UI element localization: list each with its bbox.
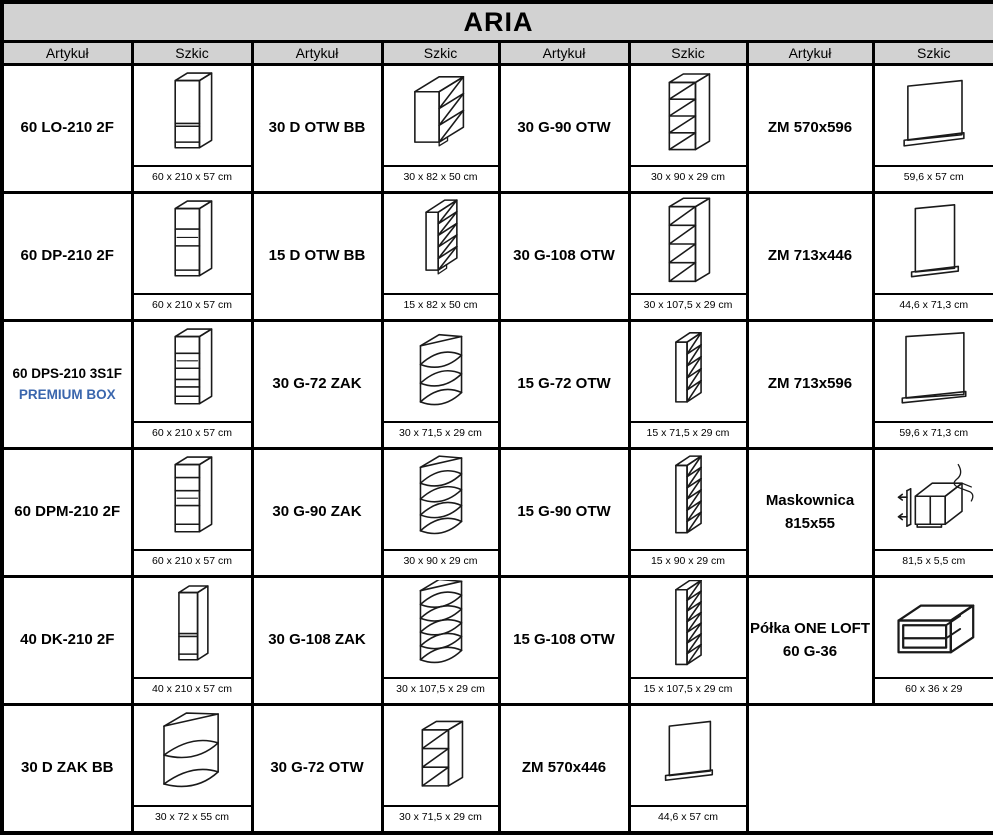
sketch-wrap: 40 x 210 x 57 cm [134, 578, 251, 700]
article-name: Półka ONE LOFT [749, 618, 872, 641]
article-cell: 15 D OTW BB [252, 193, 382, 321]
article-name: 60 LO-210 2F [4, 117, 131, 140]
tall-cabinet-2f-icon [134, 66, 251, 165]
catalog-title: ARIA [2, 2, 993, 42]
base-open-shelf-icon [384, 66, 498, 165]
sketch-wrap: 59,6 x 57 cm [875, 66, 993, 188]
sketch-wrap: 44,6 x 71,3 cm [875, 194, 993, 316]
catalog-row-5: 30 D ZAK BB30 x 72 x 55 cm30 G-72 OTW30 … [2, 705, 993, 833]
article-name: ZM 713x596 [749, 373, 872, 396]
narrow-wall-open-6-sketch-drawing [632, 452, 744, 548]
tall-cabinet-niche-2-icon [134, 450, 251, 549]
article-cell: ZM 713x596 [747, 321, 873, 449]
article-cell: 30 G-72 OTW [252, 705, 382, 833]
article-name: 30 G-72 ZAK [254, 373, 381, 396]
article-cell: Maskownica815x55 [747, 449, 873, 577]
sketch-cell: 30 x 71,5 x 29 cm [382, 705, 499, 833]
sketch-cell: 30 x 107,5 x 29 cm [382, 577, 499, 705]
catalog-table: ARIA ArtykułSzkicArtykułSzkicArtykułSzki… [0, 0, 993, 835]
sketch-cell: 15 x 82 x 50 cm [382, 193, 499, 321]
empty-cell [747, 705, 993, 833]
tall-cabinet-2f-narrow-icon [134, 578, 251, 677]
dimensions-label: 15 x 90 x 29 cm [631, 549, 746, 572]
article-subtitle: 60 G-36 [749, 641, 872, 664]
catalog-row-2: 60 DPS-210 3S1FPREMIUM BOX60 x 210 x 57 … [2, 321, 993, 449]
dimensions-label: 30 x 71,5 x 29 cm [384, 421, 498, 444]
article-cell: 30 G-90 ZAK [252, 449, 382, 577]
column-header-szkic-0: Szkic [132, 42, 252, 65]
open-shelf-box-icon [875, 578, 993, 677]
sketch-cell: 60 x 210 x 57 cm [132, 193, 252, 321]
sketch-wrap: 60 x 210 x 57 cm [134, 450, 251, 572]
base-open-shelf-sketch-drawing [385, 68, 497, 164]
article-name: 30 G-108 OTW [501, 245, 628, 268]
dimensions-label: 60 x 210 x 57 cm [134, 165, 251, 188]
panel-rail-icon [631, 706, 746, 805]
panel-icon [875, 66, 993, 165]
dimensions-label: 60 x 210 x 57 cm [134, 421, 251, 444]
sketch-wrap: 30 x 72 x 55 cm [134, 706, 251, 828]
article-name: 40 DK-210 2F [4, 629, 131, 652]
sketch-cell: 44,6 x 57 cm [629, 705, 747, 833]
sketch-cell: 60 x 36 x 29 [873, 577, 993, 705]
article-cell: 15 G-90 OTW [499, 449, 629, 577]
dimensions-label: 81,5 x 5,5 cm [875, 549, 993, 572]
sketch-wrap: 30 x 71,5 x 29 cm [384, 322, 498, 444]
dimensions-label: 44,6 x 71,3 cm [875, 293, 993, 316]
article-subtitle-accent: PREMIUM BOX [4, 385, 131, 405]
article-cell: 60 LO-210 2F [2, 65, 132, 193]
sketch-cell: 60 x 210 x 57 cm [132, 449, 252, 577]
dimensions-label: 59,6 x 57 cm [875, 165, 993, 188]
sketch-cell: 15 x 107,5 x 29 cm [629, 577, 747, 705]
catalog-row-0: 60 LO-210 2F60 x 210 x 57 cm30 D OTW BB3… [2, 65, 993, 193]
sketch-cell: 44,6 x 71,3 cm [873, 193, 993, 321]
panel-wide-sketch-drawing [878, 324, 990, 420]
narrow-wall-open-7-sketch-drawing [632, 580, 744, 676]
article-cell: 30 D OTW BB [252, 65, 382, 193]
sketch-wrap: 30 x 82 x 50 cm [384, 66, 498, 188]
article-name: Maskownica [749, 490, 872, 513]
dimensions-label: 60 x 36 x 29 [875, 677, 993, 700]
narrow-wall-open-6-icon [631, 450, 746, 549]
article-cell: ZM 570x446 [499, 705, 629, 833]
article-cell: ZM 570x596 [747, 65, 873, 193]
sketch-wrap: 60 x 210 x 57 cm [134, 194, 251, 316]
dimensions-label: 30 x 107,5 x 29 cm [631, 293, 746, 316]
article-name: 30 D OTW BB [254, 117, 381, 140]
open-shelf-box-sketch-drawing [878, 580, 990, 676]
sketch-wrap: 30 x 107,5 x 29 cm [384, 578, 498, 700]
dimensions-label: 30 x 107,5 x 29 cm [384, 677, 498, 700]
sketch-cell: 30 x 82 x 50 cm [382, 65, 499, 193]
sketch-wrap: 44,6 x 57 cm [631, 706, 746, 828]
sketch-wrap: 60 x 210 x 57 cm [134, 322, 251, 444]
panel-wide-icon [875, 322, 993, 421]
sketch-cell: 15 x 90 x 29 cm [629, 449, 747, 577]
column-header-artykul-2: Artykuł [499, 42, 629, 65]
dimensions-label: 59,6 x 71,3 cm [875, 421, 993, 444]
corner-shelf-3-sketch-drawing [385, 324, 497, 420]
article-name: ZM 570x446 [501, 757, 628, 780]
dimensions-label: 30 x 82 x 50 cm [384, 165, 498, 188]
article-cell: 30 G-108 OTW [499, 193, 629, 321]
sketch-cell: 30 x 72 x 55 cm [132, 705, 252, 833]
article-cell: 15 G-72 OTW [499, 321, 629, 449]
tall-cabinet-2f-sketch-drawing [136, 68, 248, 164]
article-cell: 60 DPS-210 3S1FPREMIUM BOX [2, 321, 132, 449]
dimensions-label: 15 x 71,5 x 29 cm [631, 421, 746, 444]
wall-open-3-icon [384, 706, 498, 805]
dimensions-label: 15 x 82 x 50 cm [384, 293, 498, 316]
dimensions-label: 60 x 210 x 57 cm [134, 549, 251, 572]
column-header-szkic-2: Szkic [629, 42, 747, 65]
article-cell: 30 G-90 OTW [499, 65, 629, 193]
article-name: 30 G-90 OTW [501, 117, 628, 140]
catalog-row-3: 60 DPM-210 2F60 x 210 x 57 cm30 G-90 ZAK… [2, 449, 993, 577]
column-header-artykul-0: Artykuł [2, 42, 132, 65]
column-header-row: ArtykułSzkicArtykułSzkicArtykułSzkicArty… [2, 42, 993, 65]
tall-cabinet-niche-sketch-drawing [136, 196, 248, 292]
article-name: ZM 570x596 [749, 117, 872, 140]
article-name: 60 DP-210 2F [4, 245, 131, 268]
corner-base-open-sketch-drawing [136, 708, 248, 804]
dimensions-label: 44,6 x 57 cm [631, 805, 746, 828]
article-name: 15 G-108 OTW [501, 629, 628, 652]
masking-strip-cabinet-sketch-drawing [878, 452, 990, 548]
sketch-cell: 15 x 71,5 x 29 cm [629, 321, 747, 449]
sketch-cell: 81,5 x 5,5 cm [873, 449, 993, 577]
tall-cabinet-niche-2-sketch-drawing [136, 452, 248, 548]
article-cell: 30 G-72 ZAK [252, 321, 382, 449]
sketch-wrap: 59,6 x 71,3 cm [875, 322, 993, 444]
tall-cabinet-2f-narrow-sketch-drawing [136, 580, 248, 676]
dimensions-label: 30 x 90 x 29 cm [631, 165, 746, 188]
corner-shelf-5-sketch-drawing [385, 580, 497, 676]
dimensions-label: 60 x 210 x 57 cm [134, 293, 251, 316]
dimensions-label: 30 x 90 x 29 cm [384, 549, 498, 572]
article-cell: 30 D ZAK BB [2, 705, 132, 833]
corner-shelf-5-icon [384, 578, 498, 677]
sketch-wrap: 15 x 82 x 50 cm [384, 194, 498, 316]
column-header-szkic-3: Szkic [873, 42, 993, 65]
article-subtitle: 815x55 [749, 513, 872, 536]
sketch-cell: 59,6 x 71,3 cm [873, 321, 993, 449]
narrow-wall-open-7-icon [631, 578, 746, 677]
catalog-row-4: 40 DK-210 2F40 x 210 x 57 cm30 G-108 ZAK… [2, 577, 993, 705]
article-name: 15 G-72 OTW [501, 373, 628, 396]
article-cell: ZM 713x446 [747, 193, 873, 321]
sketch-cell: 30 x 107,5 x 29 cm [629, 193, 747, 321]
wall-open-4-tall-sketch-drawing [632, 196, 744, 292]
column-header-artykul-1: Artykuł [252, 42, 382, 65]
sketch-wrap: 30 x 107,5 x 29 cm [631, 194, 746, 316]
article-name: 60 DPM-210 2F [4, 501, 131, 524]
article-cell: 60 DPM-210 2F [2, 449, 132, 577]
sketch-cell: 30 x 90 x 29 cm [629, 65, 747, 193]
sketch-cell: 60 x 210 x 57 cm [132, 65, 252, 193]
sketch-wrap: 60 x 210 x 57 cm [134, 66, 251, 188]
sketch-cell: 30 x 90 x 29 cm [382, 449, 499, 577]
sketch-cell: 40 x 210 x 57 cm [132, 577, 252, 705]
panel-rail-sketch-drawing [632, 708, 744, 804]
corner-shelf-4-icon [384, 450, 498, 549]
article-cell: 30 G-108 ZAK [252, 577, 382, 705]
sketch-cell: 60 x 210 x 57 cm [132, 321, 252, 449]
sketch-cell: 30 x 71,5 x 29 cm [382, 321, 499, 449]
article-name: 30 G-108 ZAK [254, 629, 381, 652]
dimensions-label: 30 x 71,5 x 29 cm [384, 805, 498, 828]
panel-tall-icon [875, 194, 993, 293]
dimensions-label: 30 x 72 x 55 cm [134, 805, 251, 828]
tall-cabinet-drawers-icon [134, 322, 251, 421]
article-name: 30 D ZAK BB [4, 757, 131, 780]
article-name: 60 DPS-210 3S1F [4, 364, 131, 384]
sketch-wrap: 15 x 71,5 x 29 cm [631, 322, 746, 444]
sketch-wrap: 30 x 71,5 x 29 cm [384, 706, 498, 828]
corner-shelf-3-icon [384, 322, 498, 421]
tall-cabinet-drawers-sketch-drawing [136, 324, 248, 420]
wall-open-4-sketch-drawing [632, 68, 744, 164]
article-cell: 40 DK-210 2F [2, 577, 132, 705]
column-header-szkic-1: Szkic [382, 42, 499, 65]
article-cell: 15 G-108 OTW [499, 577, 629, 705]
sketch-wrap: 60 x 36 x 29 [875, 578, 993, 700]
title-row: ARIA [2, 2, 993, 42]
tall-cabinet-niche-icon [134, 194, 251, 293]
sketch-wrap: 30 x 90 x 29 cm [384, 450, 498, 572]
dimensions-label: 40 x 210 x 57 cm [134, 677, 251, 700]
corner-shelf-4-sketch-drawing [385, 452, 497, 548]
article-name: ZM 713x446 [749, 245, 872, 268]
article-cell: 60 DP-210 2F [2, 193, 132, 321]
narrow-base-open-icon [384, 194, 498, 293]
sketch-wrap: 30 x 90 x 29 cm [631, 66, 746, 188]
wall-open-4-icon [631, 66, 746, 165]
sketch-wrap: 15 x 90 x 29 cm [631, 450, 746, 572]
sketch-wrap: 15 x 107,5 x 29 cm [631, 578, 746, 700]
article-name: 30 G-90 ZAK [254, 501, 381, 524]
masking-strip-cabinet-icon [875, 450, 993, 549]
narrow-base-open-sketch-drawing [385, 196, 497, 292]
wall-open-4-tall-icon [631, 194, 746, 293]
narrow-wall-open-5-sketch-drawing [632, 324, 744, 420]
column-header-artykul-3: Artykuł [747, 42, 873, 65]
sketch-wrap: 81,5 x 5,5 cm [875, 450, 993, 572]
wall-open-3-sketch-drawing [385, 708, 497, 804]
article-name: 15 D OTW BB [254, 245, 381, 268]
panel-sketch-drawing [878, 68, 990, 164]
article-name: 30 G-72 OTW [254, 757, 381, 780]
dimensions-label: 15 x 107,5 x 29 cm [631, 677, 746, 700]
article-cell: Półka ONE LOFT60 G-36 [747, 577, 873, 705]
article-name: 15 G-90 OTW [501, 501, 628, 524]
panel-tall-sketch-drawing [878, 196, 990, 292]
catalog-row-1: 60 DP-210 2F60 x 210 x 57 cm15 D OTW BB1… [2, 193, 993, 321]
narrow-wall-open-5-icon [631, 322, 746, 421]
sketch-cell: 59,6 x 57 cm [873, 65, 993, 193]
corner-base-open-icon [134, 706, 251, 805]
